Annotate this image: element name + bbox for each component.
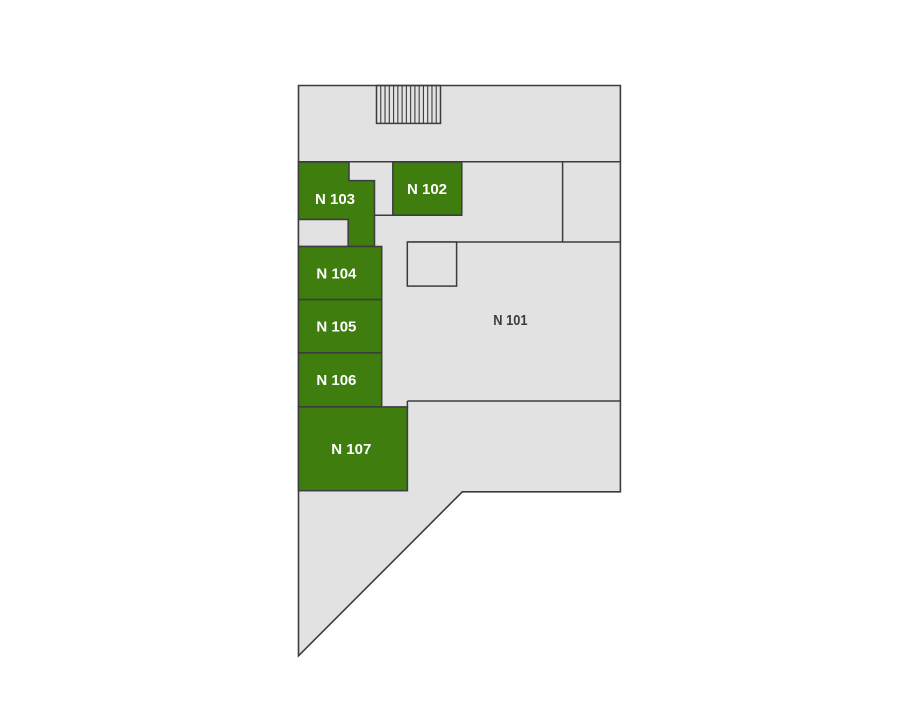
svg-text:N 107: N 107 bbox=[331, 441, 371, 458]
svg-text:N 101: N 101 bbox=[493, 312, 527, 329]
svg-text:N 103: N 103 bbox=[315, 191, 355, 208]
svg-text:N 106: N 106 bbox=[316, 372, 356, 389]
svg-text:N 105: N 105 bbox=[316, 319, 356, 336]
svg-text:N 104: N 104 bbox=[316, 265, 357, 282]
svg-text:N 102: N 102 bbox=[407, 181, 447, 198]
